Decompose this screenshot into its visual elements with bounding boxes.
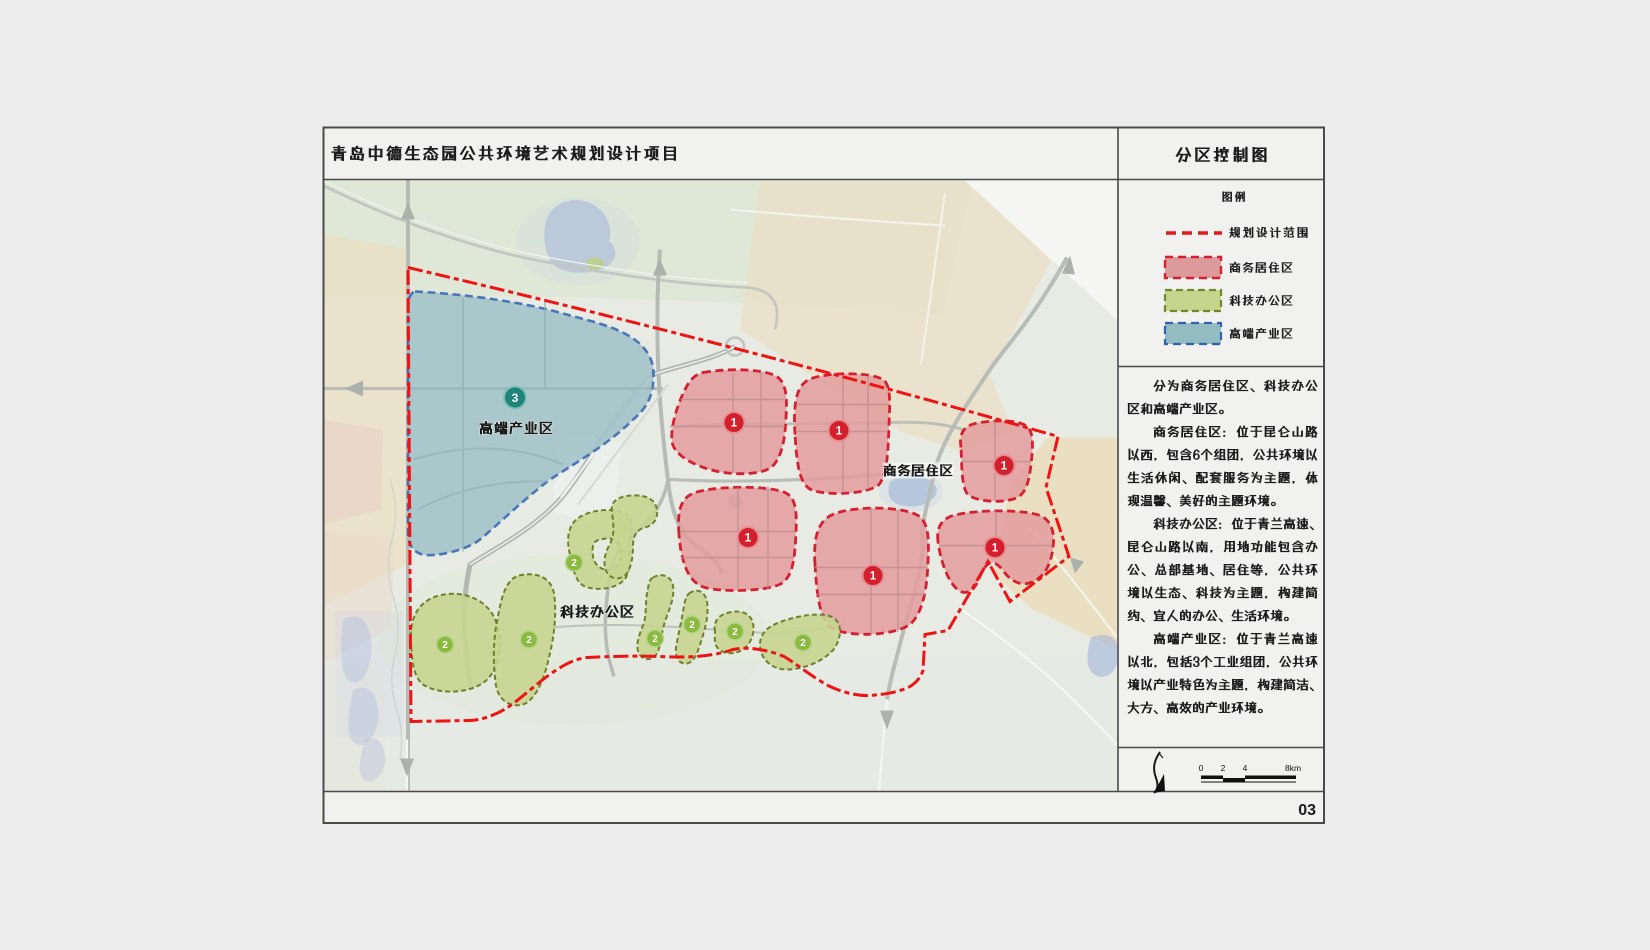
svg-text:0: 0 <box>1199 763 1204 773</box>
svg-text:8km: 8km <box>1285 763 1301 773</box>
svg-text:1: 1 <box>731 418 738 430</box>
svg-text:1: 1 <box>745 533 752 545</box>
svg-text:2: 2 <box>526 635 532 646</box>
svg-text:4: 4 <box>1243 763 1248 773</box>
svg-text:2: 2 <box>732 627 738 638</box>
svg-text:2: 2 <box>442 640 448 651</box>
svg-text:2: 2 <box>571 558 577 569</box>
svg-text:2: 2 <box>652 634 658 645</box>
svg-text:1: 1 <box>1001 461 1008 473</box>
svg-text:1: 1 <box>870 571 877 583</box>
svg-text:03: 03 <box>1298 802 1316 819</box>
svg-text:1: 1 <box>836 426 843 438</box>
svg-text:2: 2 <box>1221 763 1226 773</box>
svg-text:1: 1 <box>992 543 999 555</box>
svg-text:2: 2 <box>800 638 806 649</box>
svg-text:3: 3 <box>512 391 519 405</box>
svg-text:2: 2 <box>689 620 695 631</box>
